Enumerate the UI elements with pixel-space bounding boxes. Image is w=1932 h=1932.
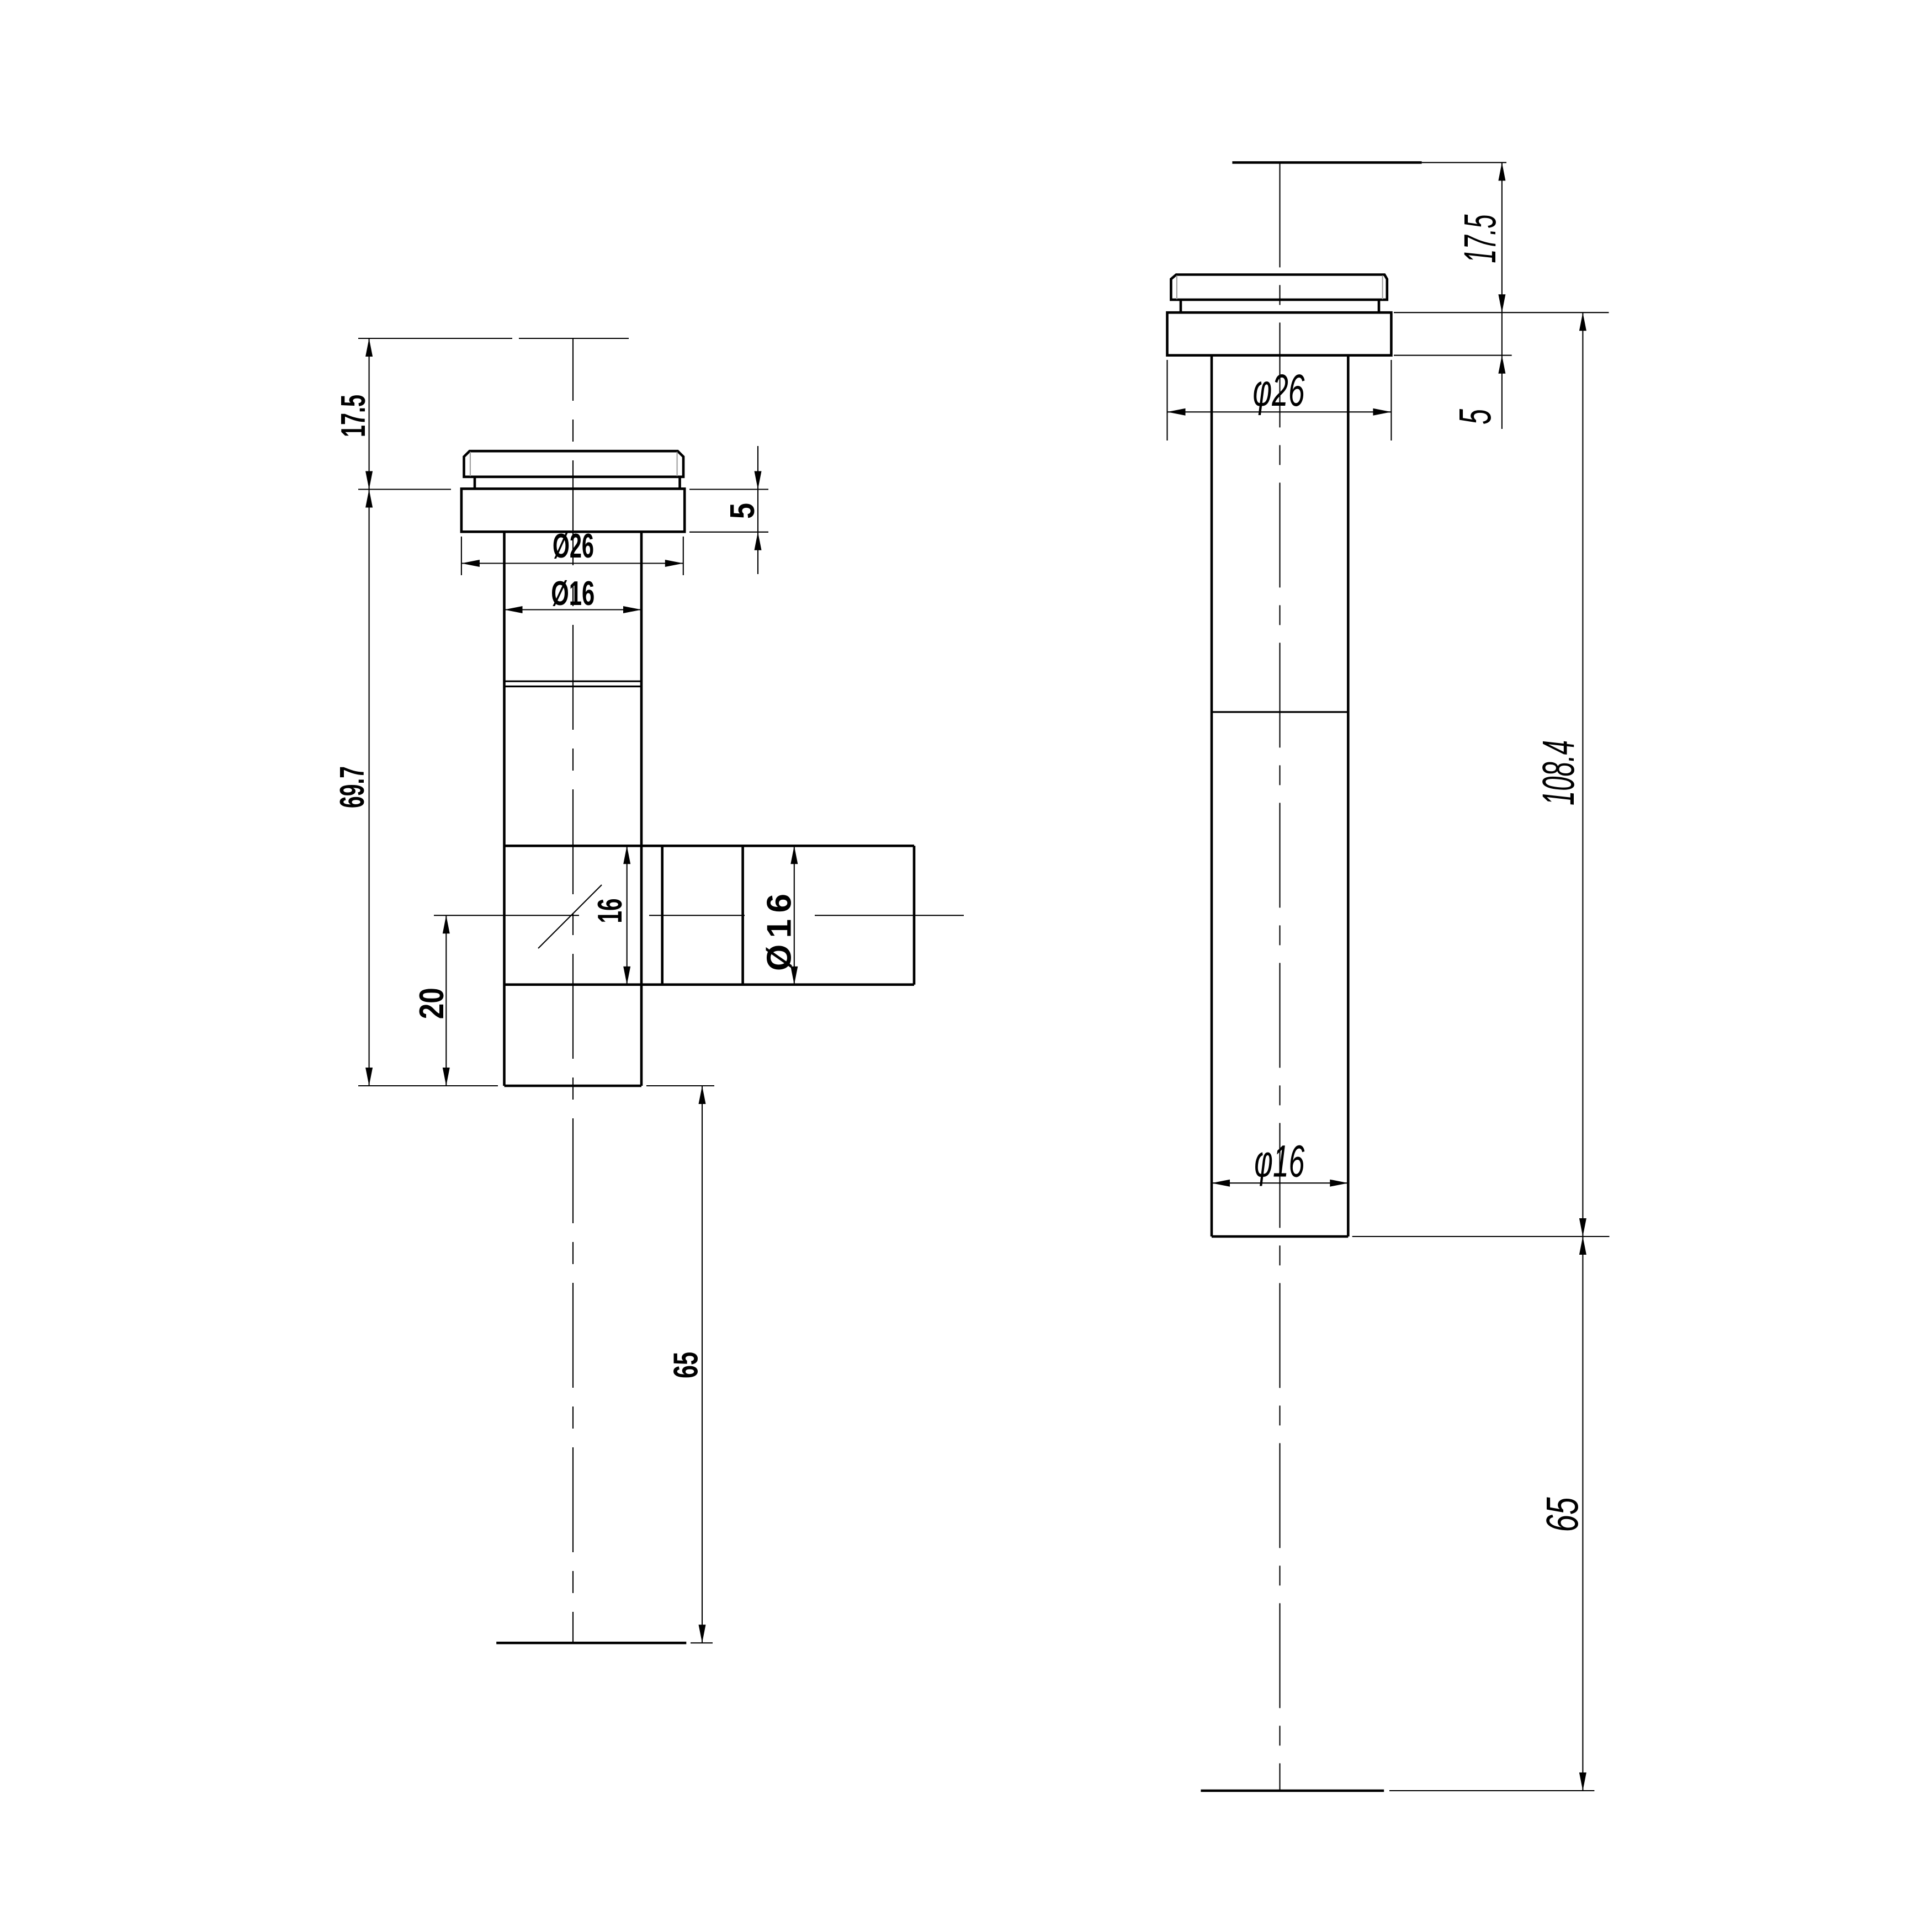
svg-text:17.5: 17.5 — [1455, 214, 1505, 263]
svg-text:5: 5 — [724, 503, 762, 519]
svg-text:Ø16: Ø16 — [551, 575, 595, 613]
svg-text:16: 16 — [591, 899, 629, 923]
svg-text:Ø26: Ø26 — [553, 527, 594, 565]
svg-text:69.7: 69.7 — [333, 766, 371, 808]
svg-text:108.4: 108.4 — [1533, 740, 1584, 805]
svg-text:φ26: φ26 — [1253, 365, 1305, 416]
svg-text:Ø16: Ø16 — [761, 894, 799, 971]
svg-text:φ16: φ16 — [1254, 1137, 1304, 1187]
svg-text:5: 5 — [1450, 409, 1500, 424]
svg-text:20: 20 — [413, 988, 451, 1019]
svg-text:65: 65 — [1537, 1497, 1588, 1532]
svg-text:17.5: 17.5 — [335, 395, 373, 437]
svg-text:65: 65 — [667, 1352, 705, 1378]
